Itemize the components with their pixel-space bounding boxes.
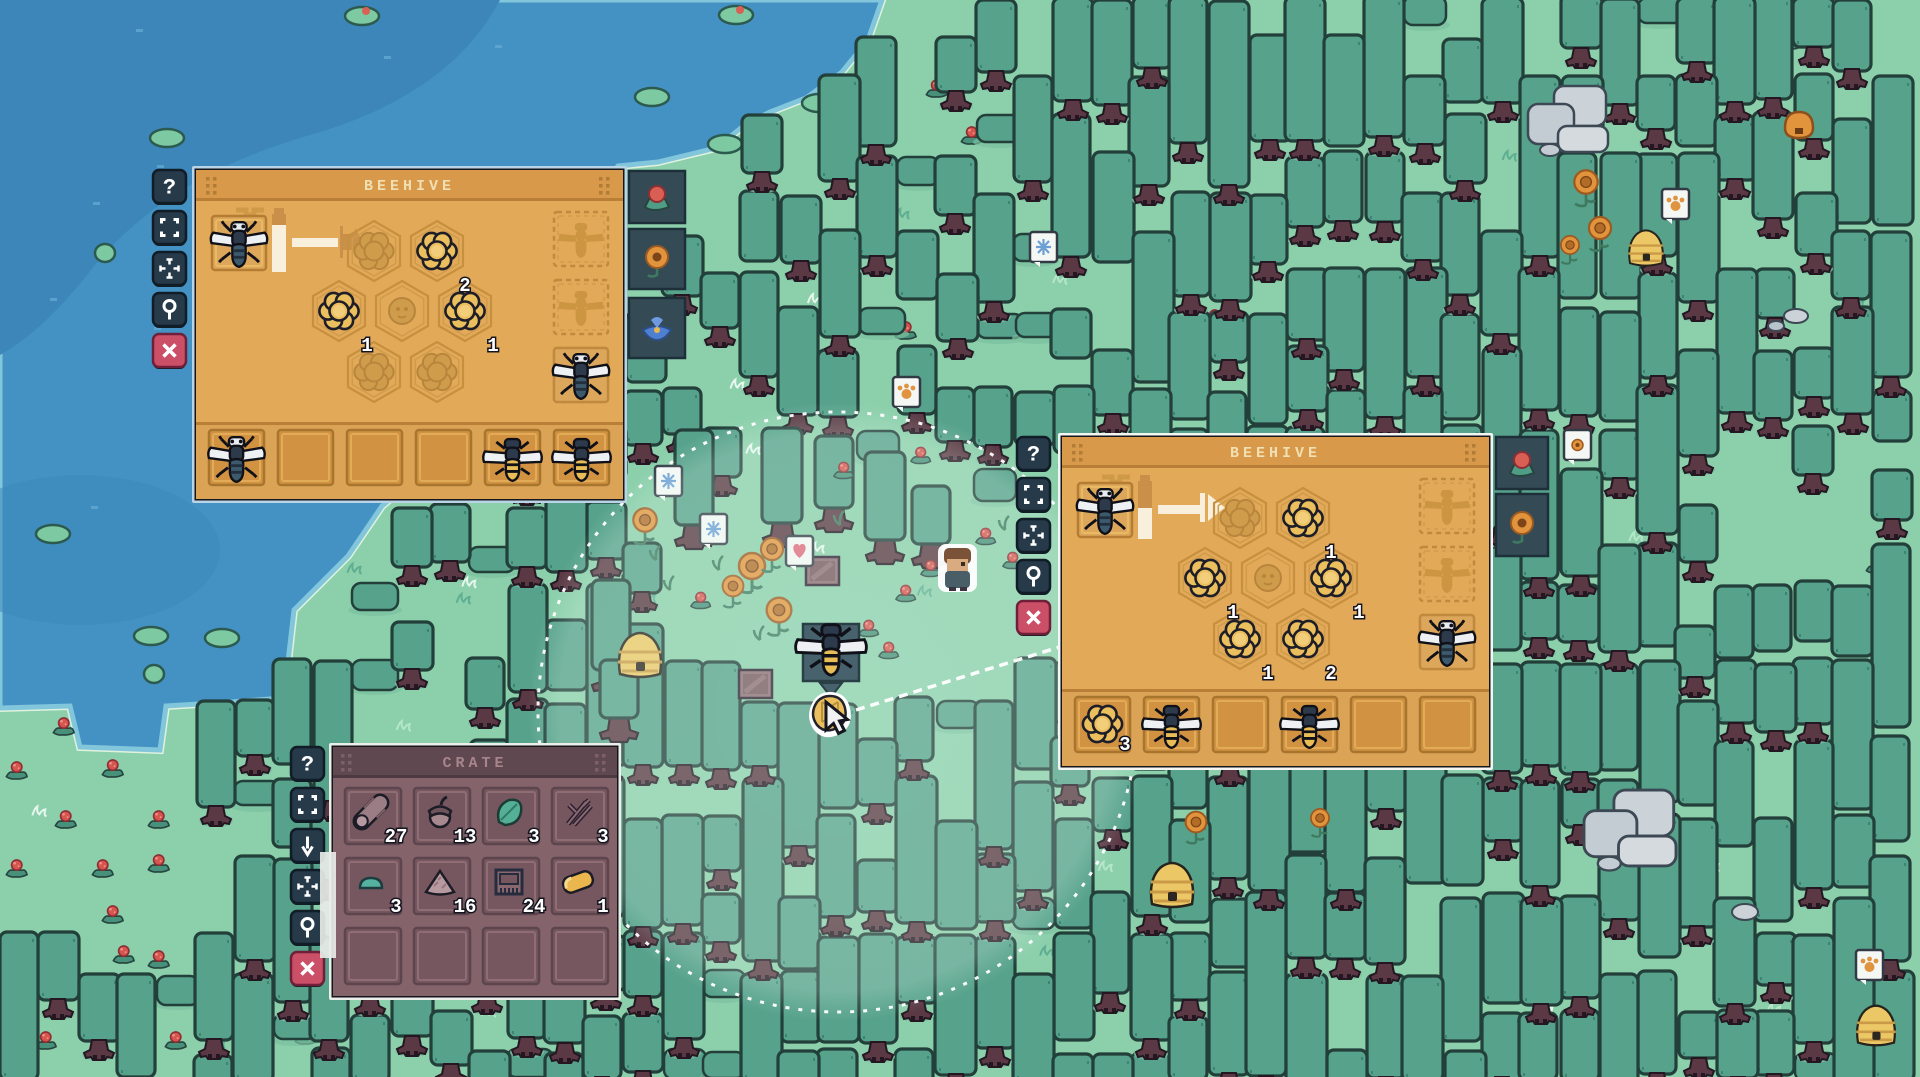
svg-text:1: 1 [1227, 602, 1238, 624]
svg-text:1: 1 [597, 896, 608, 918]
svg-text:3: 3 [597, 826, 608, 848]
svg-text:BEEHIVE: BEEHIVE [364, 178, 455, 195]
svg-text:2: 2 [1325, 663, 1336, 685]
svg-text:1: 1 [487, 335, 498, 357]
svg-text:1: 1 [1325, 542, 1336, 564]
svg-text:1: 1 [1262, 663, 1273, 685]
svg-text:3: 3 [528, 826, 539, 848]
svg-text:27: 27 [385, 826, 408, 848]
svg-text:BEEHIVE: BEEHIVE [1230, 445, 1321, 462]
svg-text:3: 3 [390, 896, 401, 918]
svg-text:2: 2 [459, 275, 470, 297]
svg-text:CRATE: CRATE [442, 755, 507, 772]
svg-text:?: ? [1027, 443, 1040, 468]
svg-text:?: ? [163, 176, 176, 201]
svg-text:?: ? [301, 753, 314, 778]
svg-text:24: 24 [523, 896, 546, 918]
svg-text:1: 1 [1353, 602, 1364, 624]
svg-text:16: 16 [454, 896, 477, 918]
svg-text:13: 13 [454, 826, 477, 848]
svg-text:1: 1 [361, 335, 372, 357]
svg-text:3: 3 [1119, 734, 1130, 756]
